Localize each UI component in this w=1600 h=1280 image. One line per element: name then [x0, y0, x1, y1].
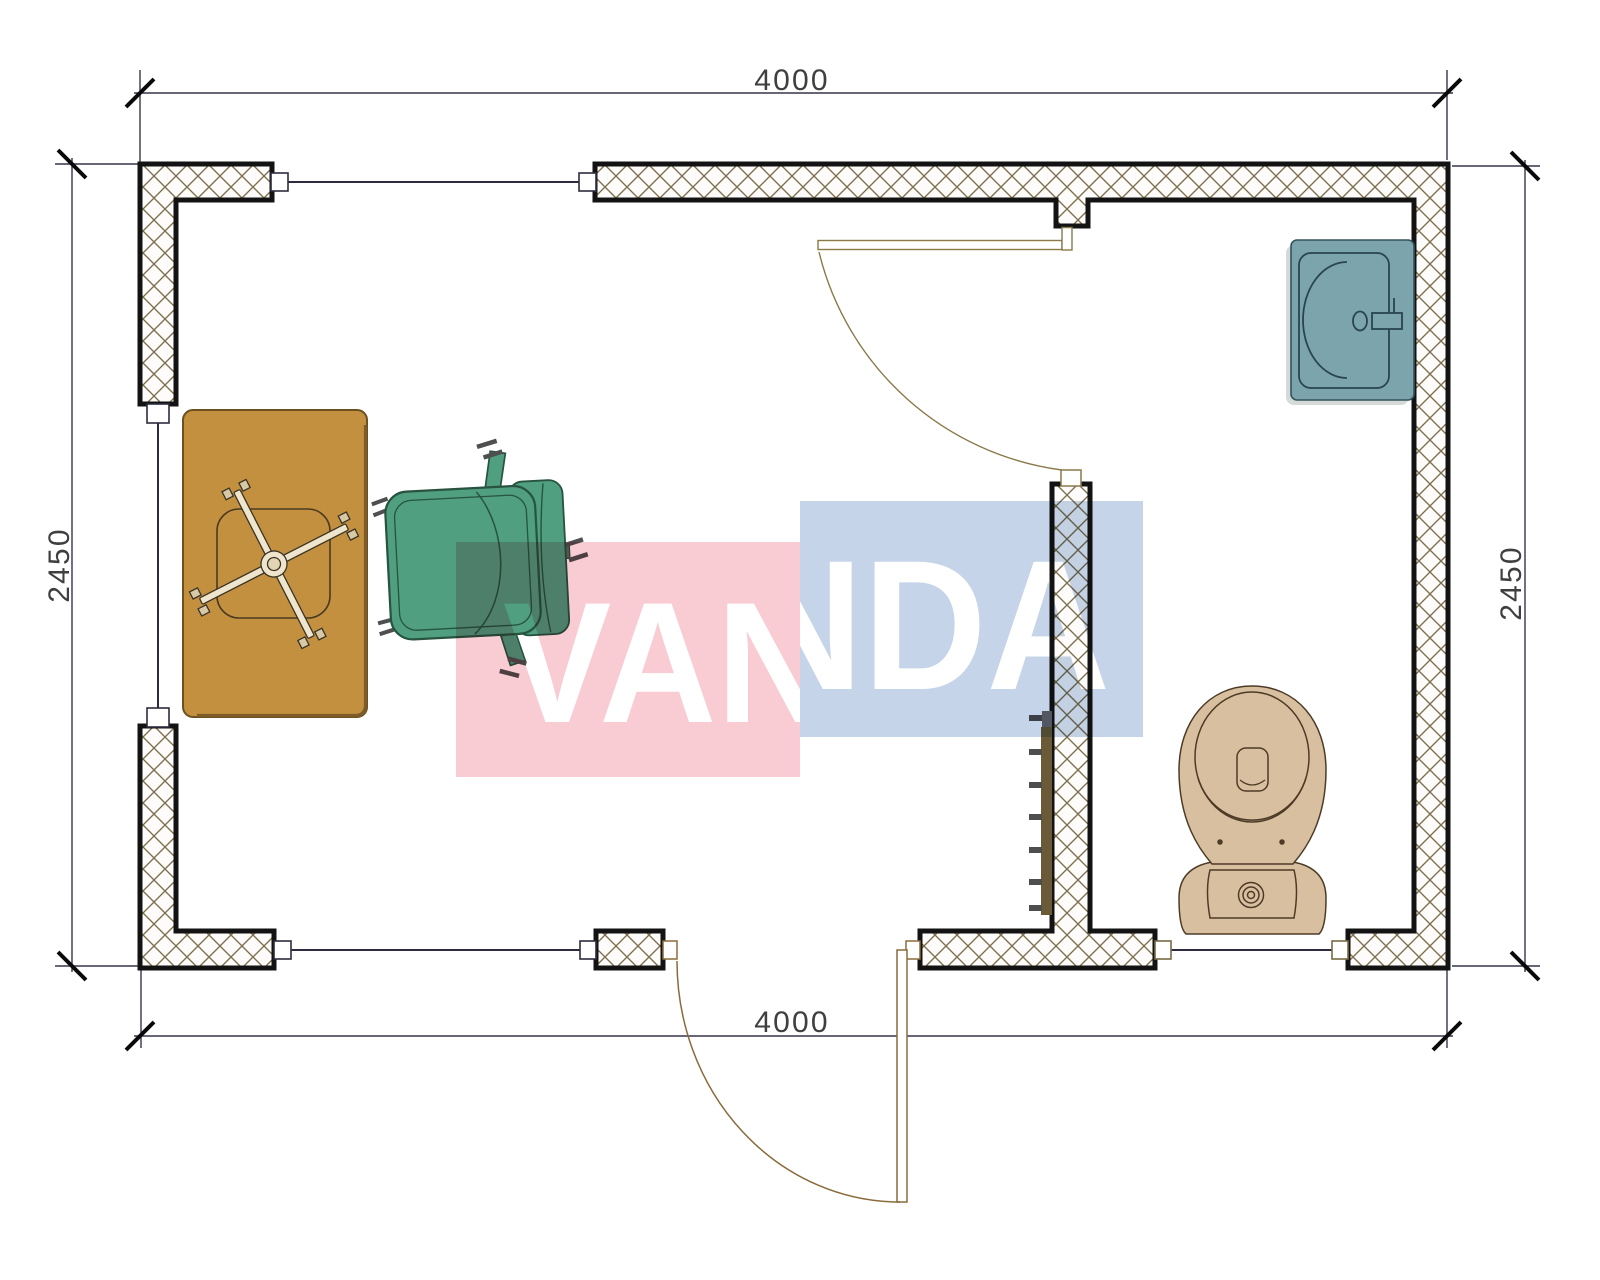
svg-text:2450: 2450 — [43, 527, 76, 603]
svg-text:4000: 4000 — [754, 64, 830, 97]
svg-text:4000: 4000 — [754, 1006, 830, 1039]
svg-text:2450: 2450 — [1495, 545, 1528, 621]
